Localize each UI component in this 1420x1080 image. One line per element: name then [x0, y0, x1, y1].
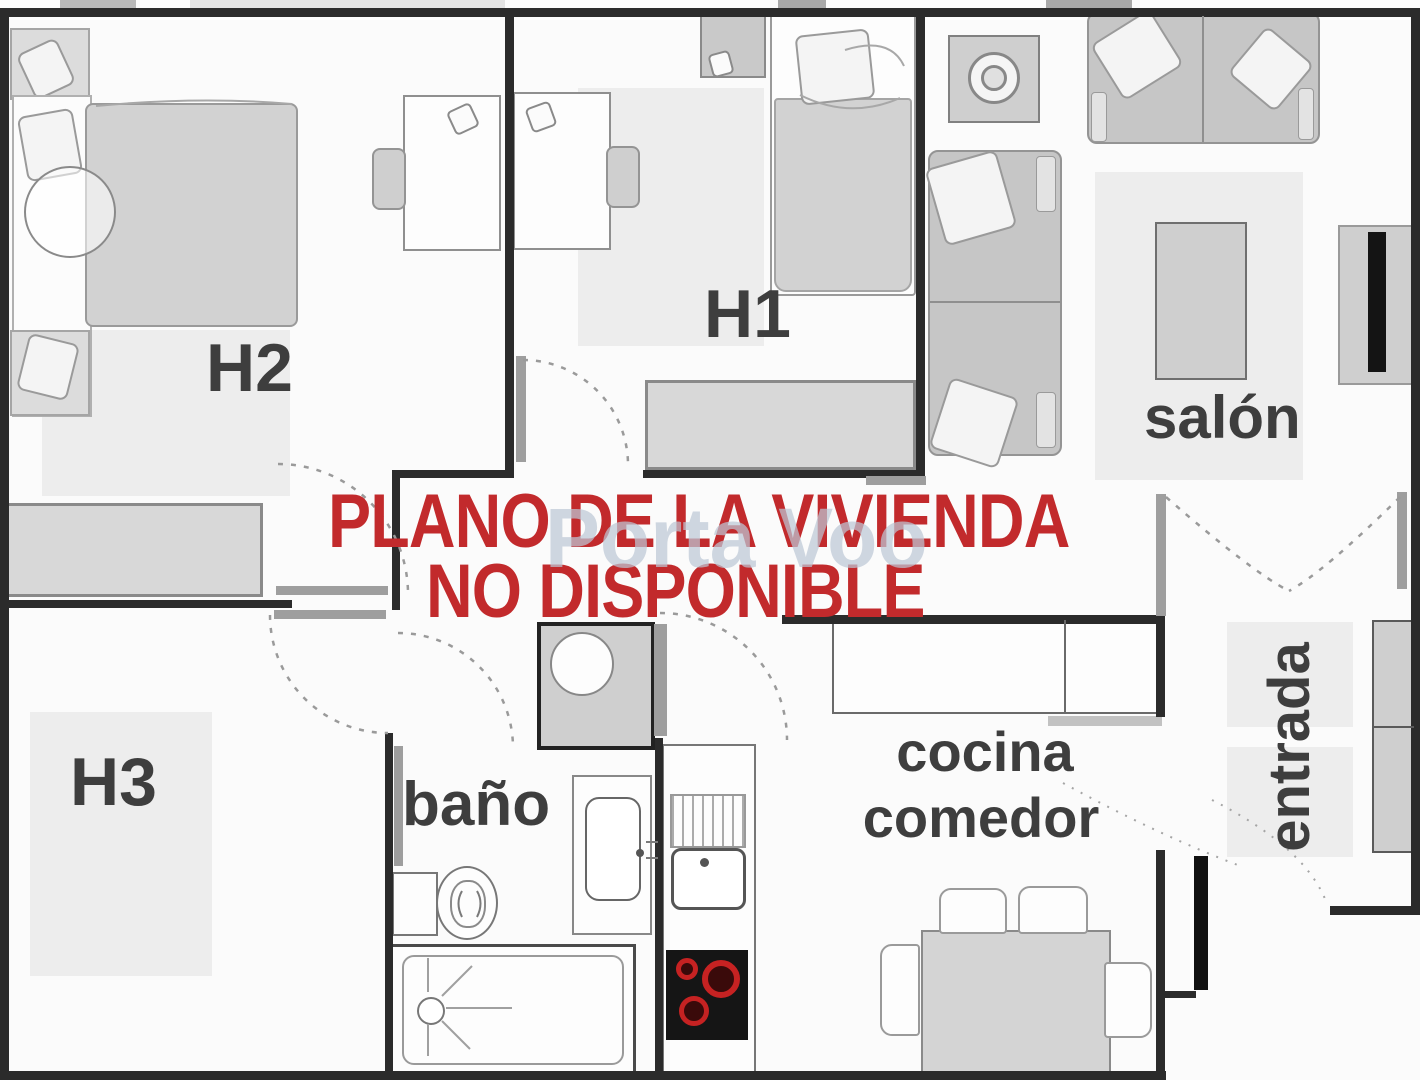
h1-bed-blanket [774, 98, 912, 292]
floor-plan: H2 H1 H3 salón baño cocina comedor entra… [0, 0, 1420, 1080]
dining-chair-right [1104, 962, 1152, 1038]
toilet-seat [450, 880, 486, 928]
salon-appliance-ring-inner [981, 65, 1007, 91]
door-arc-h3 [270, 615, 388, 733]
h2-door-bar-upper [276, 586, 388, 595]
h2-bed-blanket [85, 103, 298, 327]
dining-chair-left [880, 944, 920, 1036]
kitchen-drainboard [670, 794, 746, 848]
wall-cocina-right-lower [1156, 850, 1165, 1080]
stove-burner-small [676, 958, 698, 980]
dining-chair-top-1 [939, 888, 1007, 934]
kitchen-faucet [700, 858, 709, 867]
h1-chair [606, 146, 640, 208]
wall-entrance-notch [1330, 906, 1420, 915]
label-salon: salón [1144, 388, 1301, 448]
wall-left [0, 8, 9, 1080]
h2-wardrobe [5, 503, 263, 597]
wall-entrance-tick [1164, 991, 1196, 998]
entrance-door-leaf [1194, 856, 1208, 990]
entrada-door-leaf-left [1156, 494, 1166, 616]
wall-right [1411, 8, 1420, 914]
exterior-cap-1 [60, 0, 136, 8]
coffee-table [1155, 222, 1247, 380]
toilet-cistern [392, 872, 438, 936]
label-entrada: entrada [1261, 627, 1319, 867]
exterior-cap-4 [1046, 0, 1132, 8]
dining-table [921, 930, 1111, 1080]
bathroom-sink-basin [585, 797, 641, 901]
wall-top [0, 8, 1420, 17]
door-arc-entrada-left [1166, 497, 1289, 591]
h2-bedside-lamp [24, 166, 116, 258]
washing-machine-drum [550, 632, 614, 696]
h1-wardrobe [645, 380, 916, 470]
exterior-cap-2 [190, 0, 505, 8]
door-arc-bano [398, 633, 513, 748]
h3-door-bar-lower [274, 610, 386, 619]
wall-hall-h2 [397, 470, 514, 478]
label-h1: H1 [704, 280, 791, 348]
wall-cocina-right-upper [1156, 615, 1165, 717]
h2-chair [372, 148, 406, 210]
door-arc-h1 [523, 360, 628, 465]
h1-pillow [795, 28, 876, 105]
stove-burner-medium [679, 996, 709, 1026]
wall-bano-left [385, 733, 393, 1080]
sofa-left-armrest-bottom [1036, 392, 1056, 448]
label-bano: baño [402, 774, 550, 836]
exterior-cap-3 [778, 0, 826, 8]
door-arc-entrada-right [1289, 497, 1400, 591]
sofa-top-armrest-right [1298, 88, 1314, 140]
shower-drain [417, 997, 445, 1025]
bathroom-faucet [636, 849, 644, 857]
wall-h1-right [916, 8, 925, 476]
kitchen-door-leaf [654, 624, 667, 736]
h1-door-leaf [516, 356, 526, 462]
tv-screen [1368, 232, 1386, 372]
wall-h2-h1-divider [505, 8, 514, 476]
label-comedor: comedor [848, 790, 1114, 846]
label-cocina: cocina [876, 724, 1094, 780]
sofa-left-armrest-top [1036, 156, 1056, 212]
kitchen-sink [671, 848, 746, 910]
wall-kitchen-left [655, 738, 663, 1080]
label-h2: H2 [206, 334, 293, 402]
wall-h2-h3 [0, 600, 292, 608]
dining-chair-top-2 [1018, 886, 1088, 934]
sofa-top-armrest-left [1091, 92, 1107, 142]
entrada-closet [1372, 620, 1414, 853]
label-h3: H3 [70, 748, 157, 816]
entrada-door-leaf-right [1397, 492, 1407, 589]
wall-bottom [0, 1071, 1166, 1080]
site-watermark: Porta Voo [545, 496, 928, 580]
stove-burner-large [702, 960, 740, 998]
